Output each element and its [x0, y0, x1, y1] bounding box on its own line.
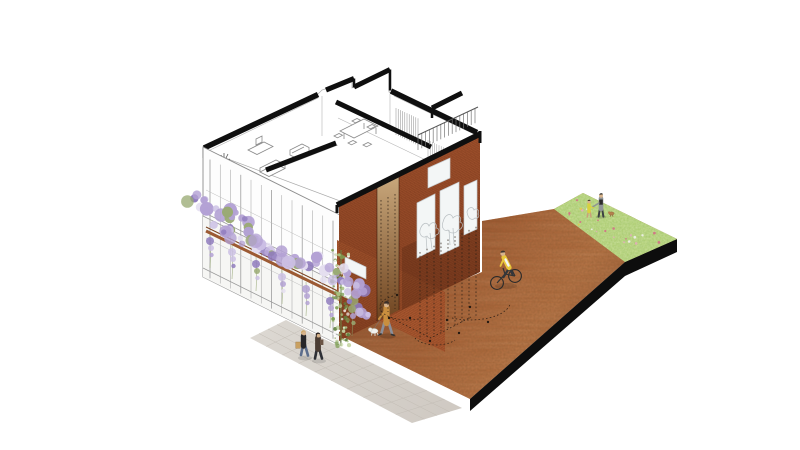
- shadow: [298, 356, 312, 361]
- axonometric-illustration: [0, 0, 800, 450]
- shadow: [596, 215, 607, 219]
- shadow: [495, 283, 517, 289]
- backpack: [599, 200, 603, 205]
- glazing-tall-1: [417, 194, 435, 258]
- shadow: [380, 333, 396, 338]
- glazing-tall-2: [440, 182, 459, 255]
- illustration-canvas: [0, 0, 800, 450]
